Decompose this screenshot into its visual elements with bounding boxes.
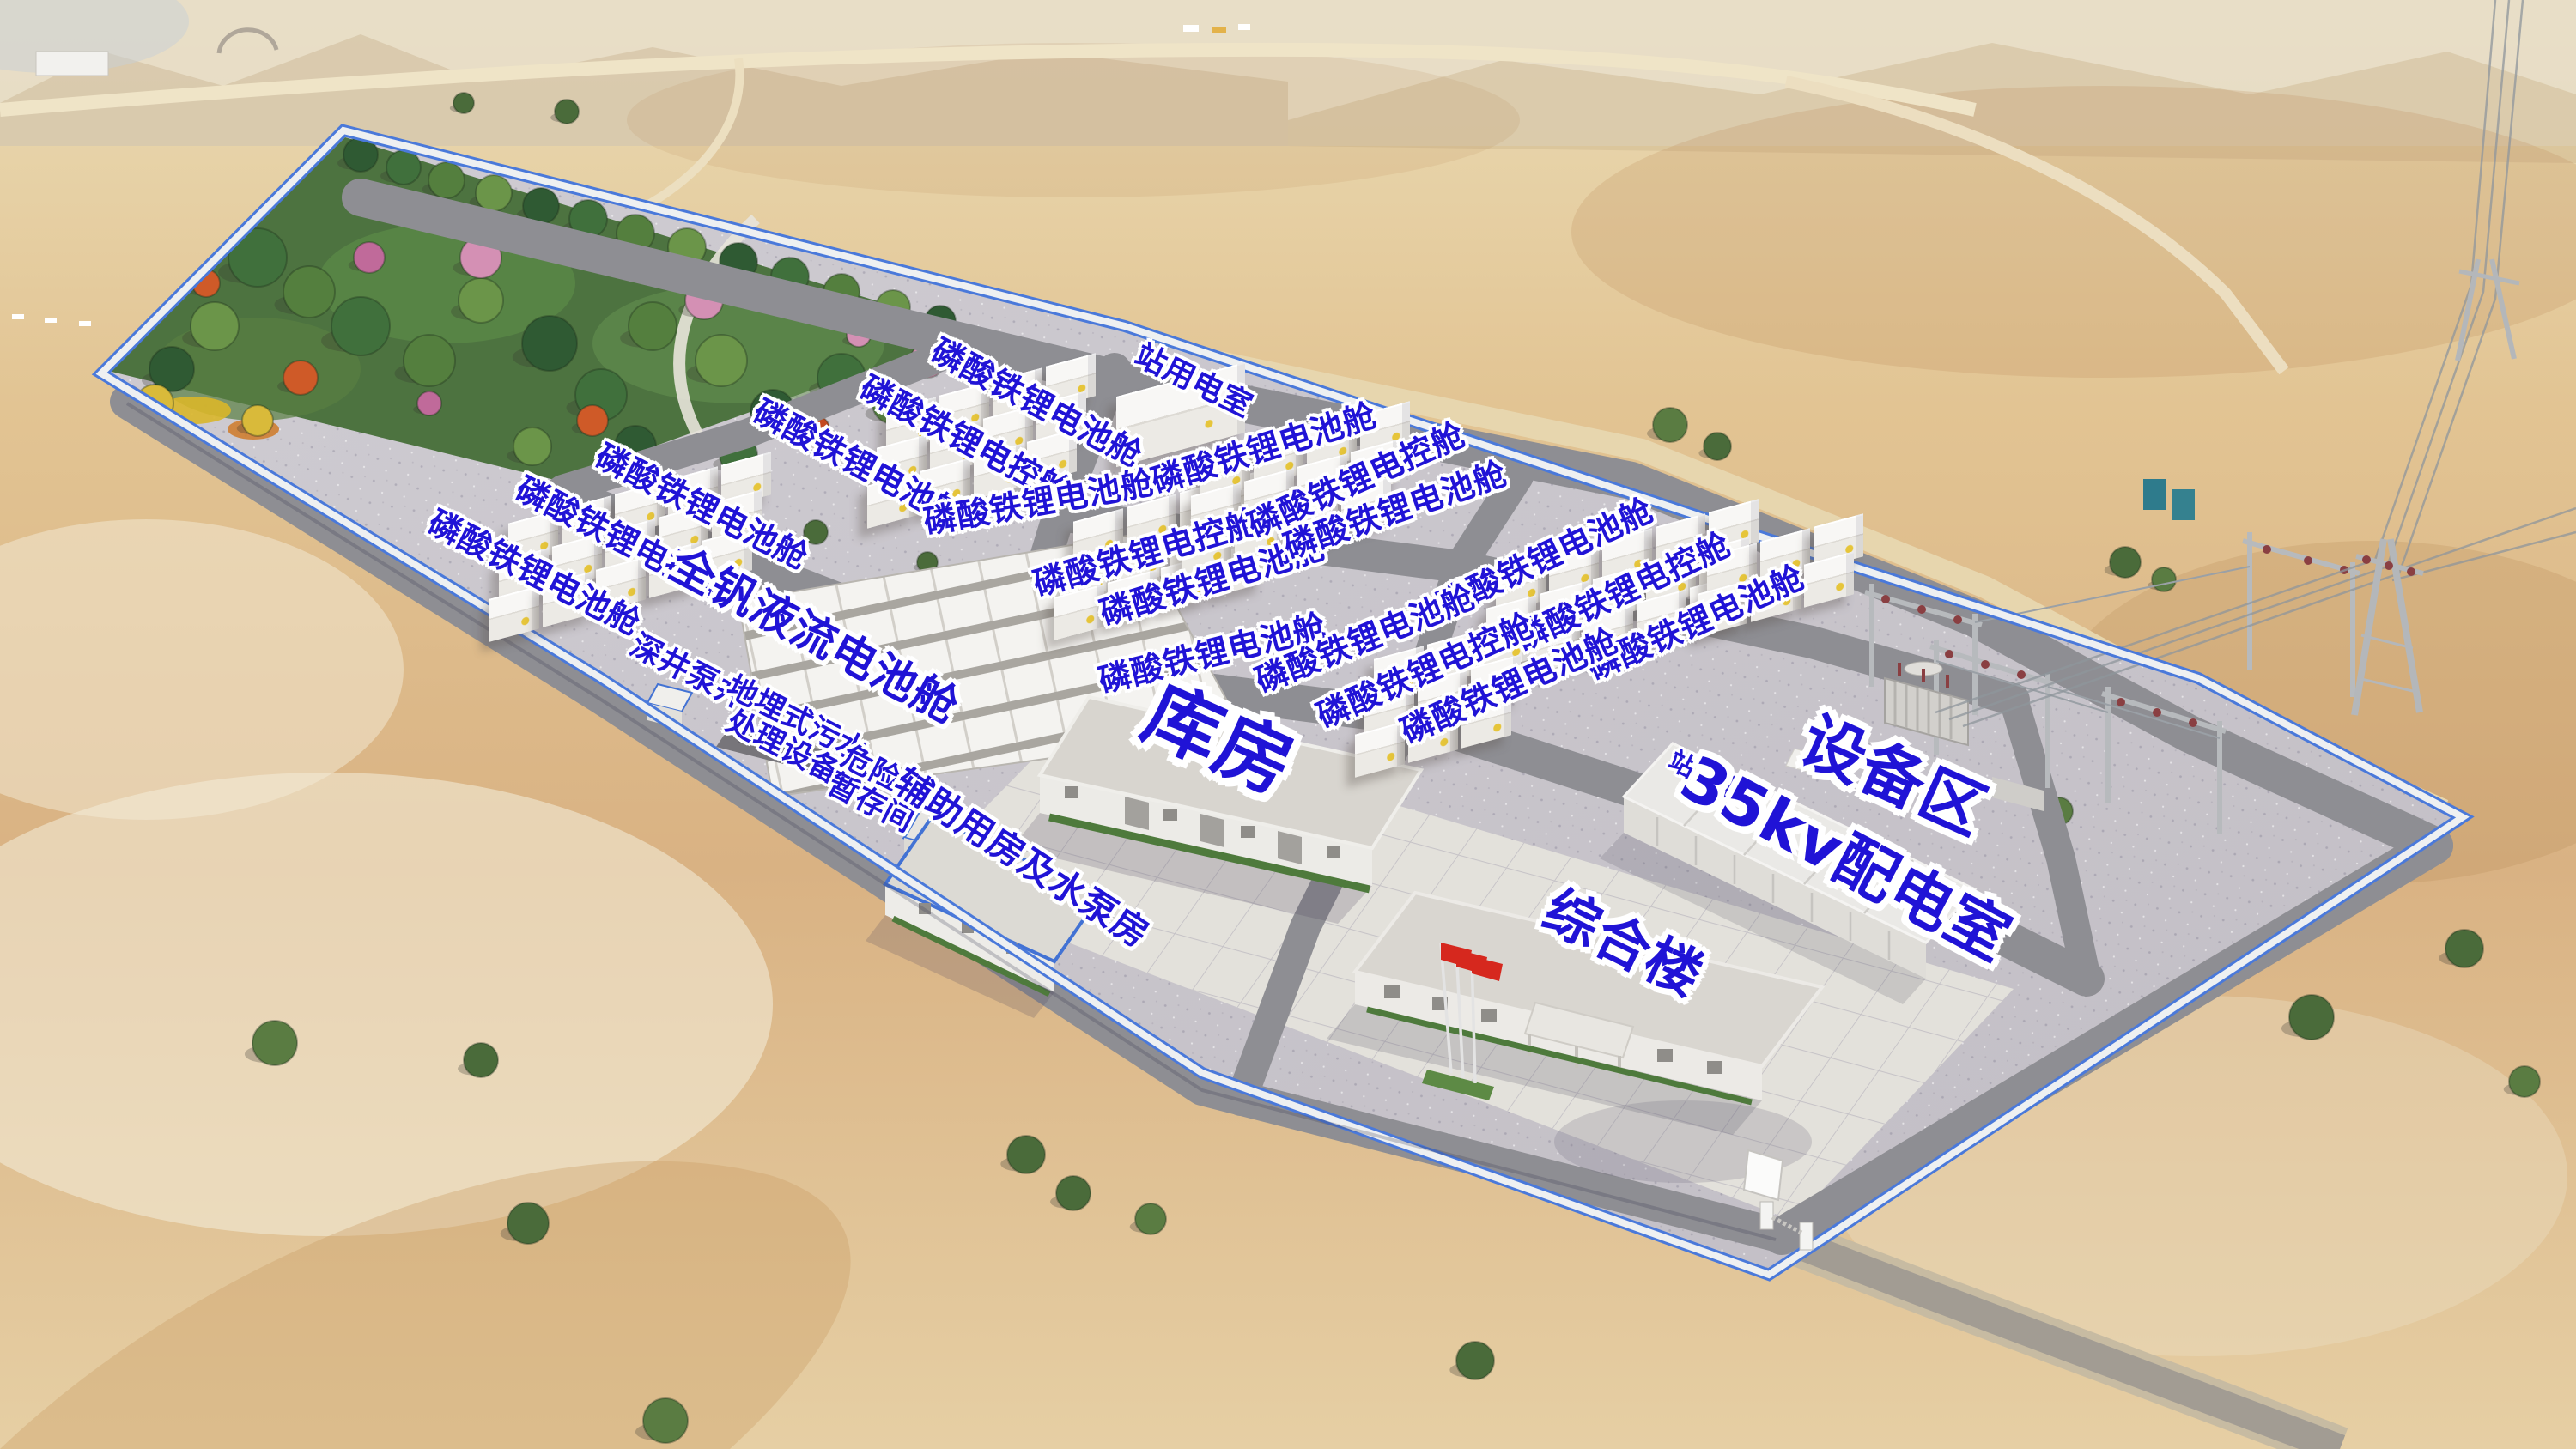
- tree: [2445, 930, 2483, 967]
- tree: [464, 1043, 498, 1077]
- tree: [476, 175, 512, 211]
- reactor-cabinet: [2172, 489, 2195, 520]
- tree: [283, 266, 335, 318]
- tree: [577, 405, 608, 436]
- tree: [507, 1203, 549, 1244]
- tree: [2110, 547, 2141, 578]
- tree: [354, 242, 385, 273]
- tree: [1135, 1203, 1166, 1234]
- tree: [696, 335, 747, 386]
- tree: [643, 1398, 688, 1443]
- tree: [1456, 1342, 1494, 1379]
- tree: [1653, 408, 1687, 442]
- tree: [629, 302, 677, 350]
- tree: [404, 335, 455, 386]
- tree: [459, 278, 503, 323]
- tree: [453, 93, 474, 113]
- distant-shed: [36, 52, 108, 76]
- tree: [242, 405, 273, 436]
- tree: [191, 302, 239, 350]
- tree: [513, 427, 551, 465]
- tree: [283, 361, 318, 395]
- tree: [2152, 567, 2176, 591]
- tree: [804, 520, 828, 544]
- tree: [417, 391, 441, 415]
- tree: [252, 1021, 297, 1065]
- tree: [1056, 1176, 1091, 1210]
- terrain-and-site-svg: [0, 0, 2576, 1449]
- tree: [2509, 1066, 2540, 1097]
- tree: [555, 100, 579, 124]
- tree: [2289, 995, 2334, 1040]
- gate-pillar: [1800, 1222, 1813, 1250]
- tree: [1007, 1136, 1045, 1173]
- tree: [522, 316, 577, 371]
- tree: [428, 162, 465, 198]
- aerial-site-render: 磷酸铁锂电池舱磷酸铁锂电控舱磷酸铁锂电池舱磷酸铁锂电池舱磷酸铁锂电控舱磷酸铁锂电…: [0, 0, 2576, 1449]
- reactor-cabinet: [2143, 479, 2166, 510]
- gate-pillar: [1760, 1202, 1773, 1229]
- tree: [386, 150, 421, 185]
- tree: [331, 297, 390, 355]
- tree: [1704, 433, 1731, 460]
